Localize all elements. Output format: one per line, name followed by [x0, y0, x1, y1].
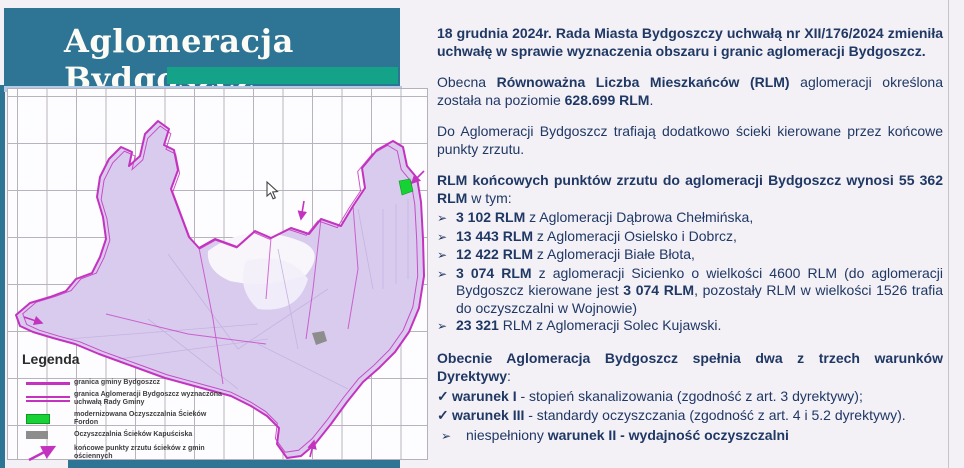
arrow-bullet-icon: ➢: [437, 425, 456, 446]
text-run: 23 321: [456, 317, 499, 333]
paragraph-rlm: Obecna Równoważna Liczba Mieszkańców (RL…: [437, 73, 943, 109]
text-run: 3 102 RLM: [456, 209, 525, 225]
check-item-condition-1: ✓ warunek I - stopień skanalizowania (zg…: [437, 387, 943, 406]
arrow-bullet-icon: ➢: [437, 209, 456, 228]
list-item: ➢ 3 102 RLM z Aglomeracji Dąbrowa Chełmi…: [437, 209, 943, 228]
legend-label: granica gminy Bydgoszcz: [74, 379, 160, 387]
paragraph-resolution: 18 grudnia 2024r. Rada Miasta Bydgoszczy…: [437, 24, 943, 60]
legend-item-agglomeration-boundary: granica Aglomeracji Bydgoszcz wyznaczona…: [16, 391, 231, 407]
text-run: 3 074 RLM: [456, 265, 532, 281]
gray-rect-swatch: [16, 431, 74, 439]
legend-label: granica Aglomeracji Bydgoszcz wyznaczona…: [74, 391, 231, 407]
slide-edge-divider: [948, 0, 949, 468]
bottom-accent-bar: [68, 460, 400, 468]
check-icon: ✓: [437, 406, 452, 425]
paragraph-discharge-total: RLM końcowych punktów zrzutu do aglomera…: [437, 171, 943, 207]
text-run: :: [507, 368, 511, 384]
text-run: z Aglomeracji Białe Błota,: [533, 246, 695, 262]
list-item: ➢ 12 422 RLM z Aglomeracji Białe Błota,: [437, 246, 943, 265]
check-item-condition-3: ✓ warunek III - standardy oczyszczania (…: [437, 406, 943, 425]
double-magenta-line-swatch: [16, 396, 74, 402]
text-column: 18 grudnia 2024r. Rada Miasta Bydgoszczy…: [437, 24, 943, 446]
text-run: 628.699 RLM: [565, 92, 650, 108]
text-run: - stopień skanalizowania (zgodność z art…: [517, 388, 863, 404]
text-run: - standardy oczyszczania (zgodność z art…: [524, 407, 905, 423]
list-item: ➢ 3 074 RLM z aglomeracji Sicienko o wie…: [437, 265, 943, 318]
legend-item-kapusciska-plant: Oczyszczalnia Ścieków Kapuściska: [16, 431, 231, 439]
text-run: z Aglomeracji Dąbrowa Chełmińska,: [525, 209, 753, 225]
presentation-slide: Aglomeracja Bydgoszcz: [0, 0, 964, 468]
legend-item-fordon-plant: modernizowana Oczyszczalnia Ścieków Ford…: [16, 411, 231, 427]
legend-label: modernizowana Oczyszczalnia Ścieków Ford…: [74, 411, 231, 427]
text-run: warunek II - wydajność oczyszczalni: [548, 427, 789, 443]
left-accent-stripe: [0, 85, 5, 468]
arrow-bullet-icon: ➢: [437, 246, 456, 265]
text-run: Równoważna Liczba Mieszkańców (RLM): [497, 74, 790, 90]
text-run: 13 443 RLM: [456, 228, 533, 244]
text-run: w tym:: [467, 190, 511, 206]
magenta-arrow-swatch: [16, 443, 74, 463]
paragraph-directive-conditions: Obecnie Aglomeracja Bydgoszcz spełnia dw…: [437, 349, 943, 385]
green-rect-swatch: [16, 414, 74, 424]
text-run: 12 422 RLM: [456, 246, 533, 262]
text-run: 18 grudnia 2024r. Rada Miasta Bydgoszczy…: [437, 25, 943, 59]
text-run: RLM końcowych punktów zrzutu do aglomera…: [437, 172, 943, 206]
page-title: Aglomeracja Bydgoszcz: [4, 8, 400, 98]
unmet-condition-item: ➢ niespełniony warunek II - wydajność oc…: [437, 425, 943, 446]
text-run: .: [649, 92, 653, 108]
arrow-bullet-icon: ➢: [437, 265, 456, 318]
agglomeration-map: Legenda granica gminy Bydgoszcz granica …: [7, 88, 428, 460]
text-run: Obecna: [437, 74, 497, 90]
text-run: warunek III: [452, 407, 524, 423]
arrow-bullet-icon: ➢: [437, 228, 456, 247]
list-item: ➢ 23 321 RLM z Aglomeracji Solec Kujawsk…: [437, 317, 943, 336]
check-icon: ✓: [437, 387, 452, 406]
legend-label: końcowe punkty zrzutu ścieków z gmin ośc…: [74, 445, 231, 461]
map-legend: Legenda granica gminy Bydgoszcz granica …: [16, 351, 231, 467]
thick-magenta-line-swatch: [16, 382, 74, 385]
discharge-bullet-list: ➢ 3 102 RLM z Aglomeracji Dąbrowa Chełmi…: [437, 209, 943, 336]
text-run: Do Aglomeracji Bydgoszcz trafiają dodatk…: [437, 123, 943, 157]
text-run: 3 074 RLM: [623, 282, 694, 298]
text-run: niespełniony: [466, 427, 548, 443]
list-item: ➢ 13 443 RLM z Aglomeracji Osielsko i Do…: [437, 228, 943, 247]
paragraph-discharge-intro: Do Aglomeracji Bydgoszcz trafiają dodatk…: [437, 122, 943, 158]
legend-item-city-boundary: granica gminy Bydgoszcz: [16, 379, 231, 387]
text-run: z Aglomeracji Osielsko i Dobrcz,: [533, 228, 737, 244]
text-run: Obecnie Aglomeracja Bydgoszcz spełnia dw…: [437, 350, 943, 384]
text-run: RLM z Aglomeracji Solec Kujawski.: [499, 317, 722, 333]
legend-label: Oczyszczalnia Ścieków Kapuściska: [74, 431, 192, 439]
legend-title: Legenda: [22, 351, 231, 367]
arrow-bullet-icon: ➢: [437, 317, 456, 336]
text-run: warunek I: [452, 388, 517, 404]
header-green-accent-bar: [167, 67, 398, 84]
